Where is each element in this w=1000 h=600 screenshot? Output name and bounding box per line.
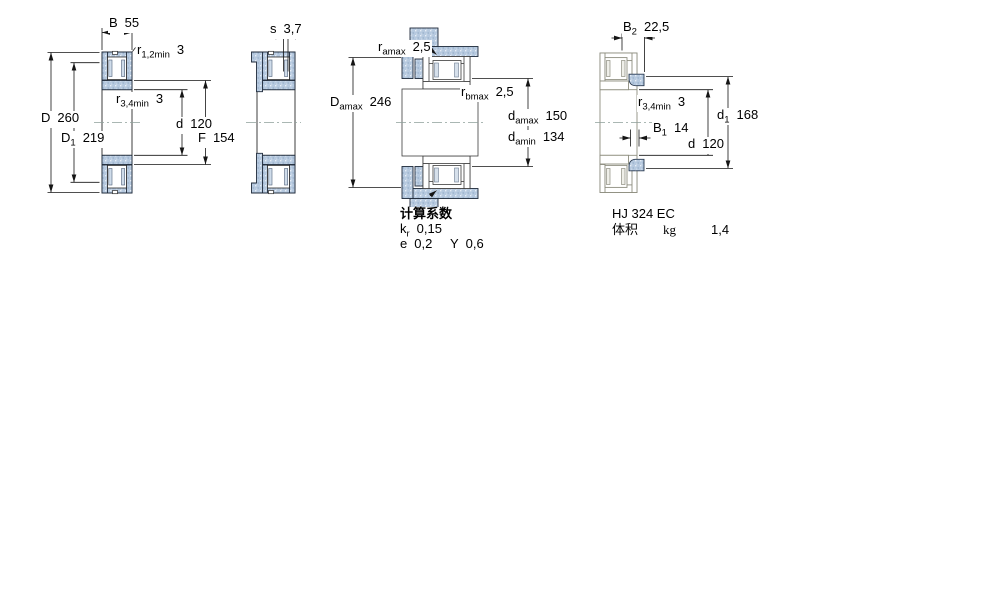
bearing-drawing-page: { "page": {"background": "#ffffff"}, "co…: [0, 0, 1000, 600]
dim-label-damax: damax150: [507, 109, 568, 126]
dim-label-damin: damin134: [507, 130, 566, 147]
dim-label-r34min: r3,4min3: [115, 92, 164, 109]
dim-label-r12min: r1,2min3: [136, 43, 185, 60]
calc-factor-Y: Y0,6: [449, 237, 485, 254]
dim-label-D: D260: [40, 111, 80, 128]
hj-mass-label: 体积: [611, 223, 639, 237]
dim-label-s: s3,7: [269, 22, 303, 39]
fig2-geometry: [246, 51, 301, 193]
hj-mass-value: 1,4: [710, 223, 730, 237]
fig1-geometry: [94, 48, 140, 194]
dim-label-Damax: Damax246: [329, 95, 392, 112]
dim-label-ramax: ramax2,5: [377, 40, 432, 57]
dim-label-B: B55: [108, 16, 140, 33]
dim-label-F: F154: [197, 131, 236, 148]
dim-label-D1: D1219: [60, 131, 105, 148]
dim-label-rbmax: rbmax2,5: [460, 85, 515, 102]
calc-factors-header: 计算系数: [399, 207, 453, 221]
hj-mass-unit: kg: [662, 223, 677, 237]
dim-label-r34min-hj: r3,4min3: [637, 95, 686, 112]
dim-label-B1: B114: [652, 121, 689, 138]
dim-label-d1: d1168: [716, 108, 759, 125]
dim-label-d-hj: d120: [687, 137, 725, 154]
fig4-geometry: [595, 53, 653, 193]
dim-label-B2: B222,5: [622, 20, 670, 37]
hj-designation: HJ 324 EC: [611, 207, 676, 221]
calc-factor-e: e0,2: [399, 237, 433, 254]
